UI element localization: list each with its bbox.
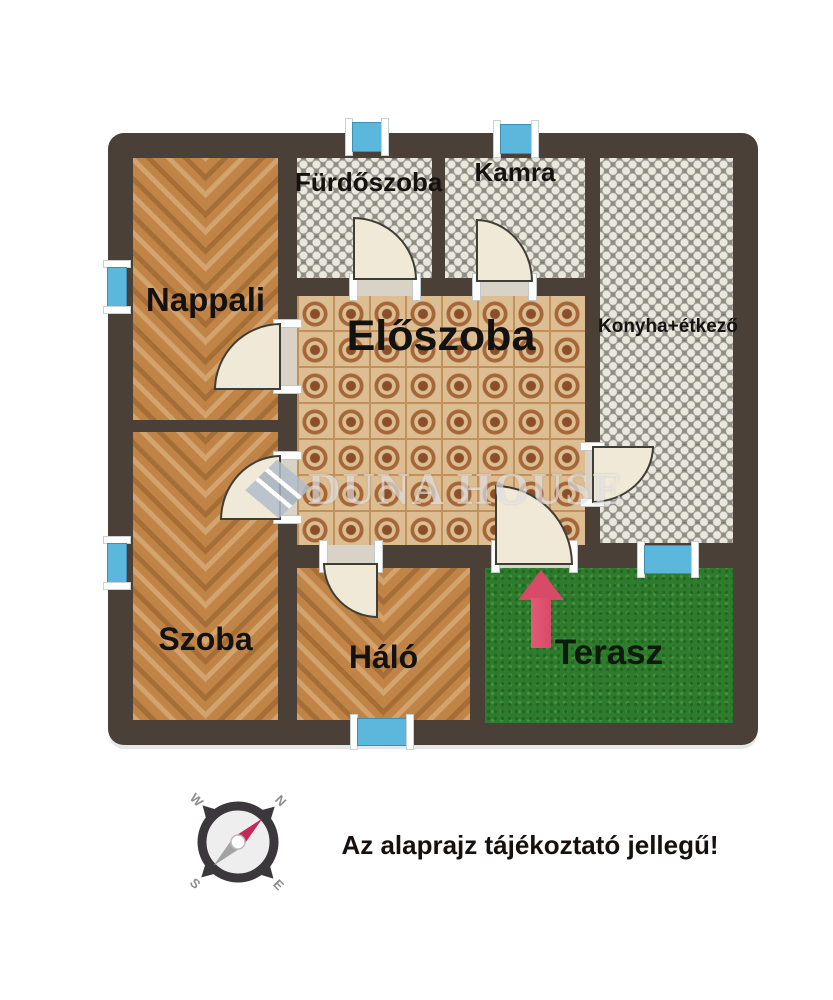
window-pane [357,718,407,746]
floor-plan: Nappali Fürdőszoba Kamra Előszoba Konyha… [108,133,758,745]
window-halo-bottom [350,714,414,750]
window-pane [352,122,382,152]
window-szoba-left [103,536,131,590]
floor-plan-page: Nappali Fürdőszoba Kamra Előszoba Konyha… [0,0,833,1000]
compass-letter-s: S [187,875,204,892]
compass-rose-icon: N E S W [173,777,303,907]
label-halo: Háló [297,641,470,673]
label-furdoszoba: Fürdőszoba [295,169,434,195]
disclaimer-text: Az alaprajz tájékoztató jellegű! [330,830,730,861]
label-szoba: Szoba [133,623,278,655]
window-nappali-left [103,260,131,314]
window-pane [107,267,127,307]
compass-letter-e: E [270,876,287,893]
window-konyha-terasz [637,541,699,578]
label-terasz: Terasz [485,635,733,670]
label-eloszoba: Előszoba [297,315,585,358]
window-furdoszoba-top [345,118,389,156]
label-kamra: Kamra [445,159,585,185]
label-nappali: Nappali [133,283,278,316]
compass-letter-n: N [272,792,289,809]
opening-furdoszoba-door [356,278,414,296]
window-pane [107,543,127,583]
window-pane [644,545,692,574]
label-konyha: Konyha+étkező [598,317,735,336]
window-pane [500,124,532,154]
arrow-head [518,570,564,600]
window-kamra-top [493,120,539,158]
